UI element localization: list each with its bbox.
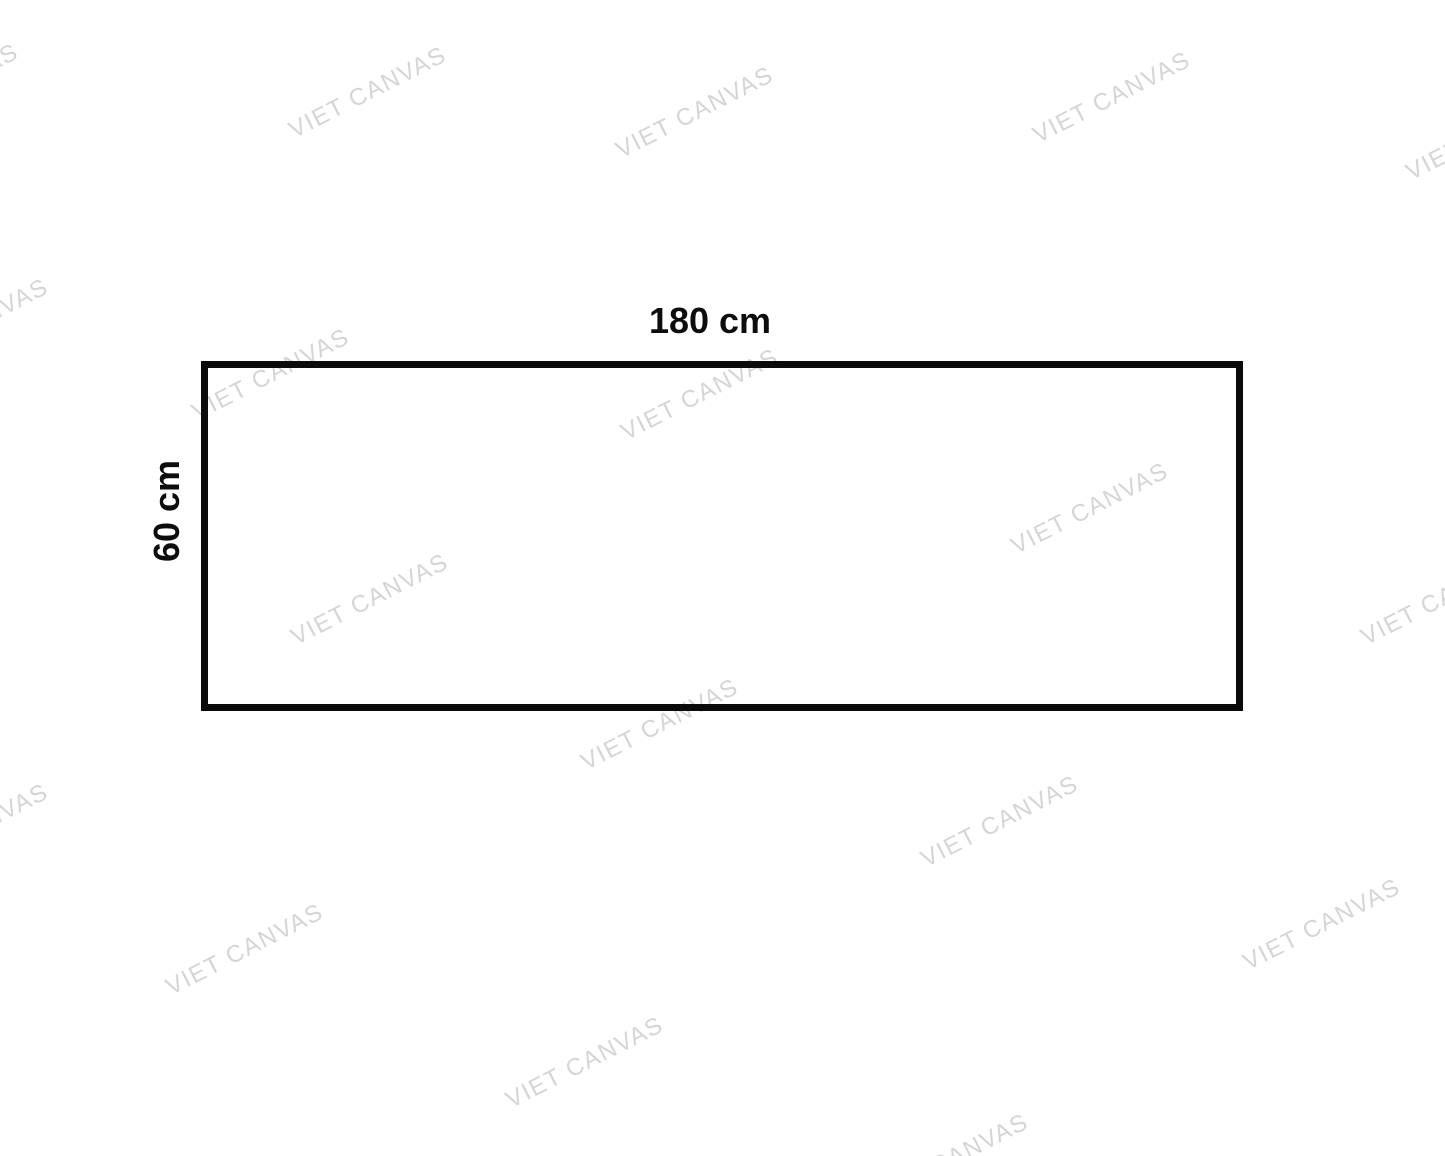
watermark-text: VIET CANVAS	[1029, 46, 1196, 149]
watermark-text: VIET CANVAS	[162, 898, 329, 1001]
watermark-text: VIET CANVAS	[0, 38, 23, 141]
watermark-text: VIET CANVAS	[917, 770, 1084, 873]
watermark-text: VIET CANVAS	[0, 778, 53, 881]
canvas-rectangle	[201, 361, 1243, 711]
watermark-text: VIET CANVAS	[612, 61, 779, 164]
watermark-text: VIET CANVAS	[285, 41, 452, 144]
watermark-text: VIET CANVAS	[867, 1108, 1034, 1156]
height-dimension-label: 60 cm	[146, 460, 188, 562]
watermark-text: VIET CANVAS	[1402, 83, 1445, 186]
diagram-canvas: VIET CANVASVIET CANVASVIET CANVASVIET CA…	[0, 0, 1445, 1156]
watermark-text: VIET CANVAS	[1357, 548, 1445, 651]
watermark-text: VIET CANVAS	[502, 1011, 669, 1114]
watermark-text: VIET CANVAS	[1239, 873, 1406, 976]
watermark-text: VIET CANVAS	[0, 273, 53, 376]
width-dimension-label: 180 cm	[649, 300, 771, 342]
